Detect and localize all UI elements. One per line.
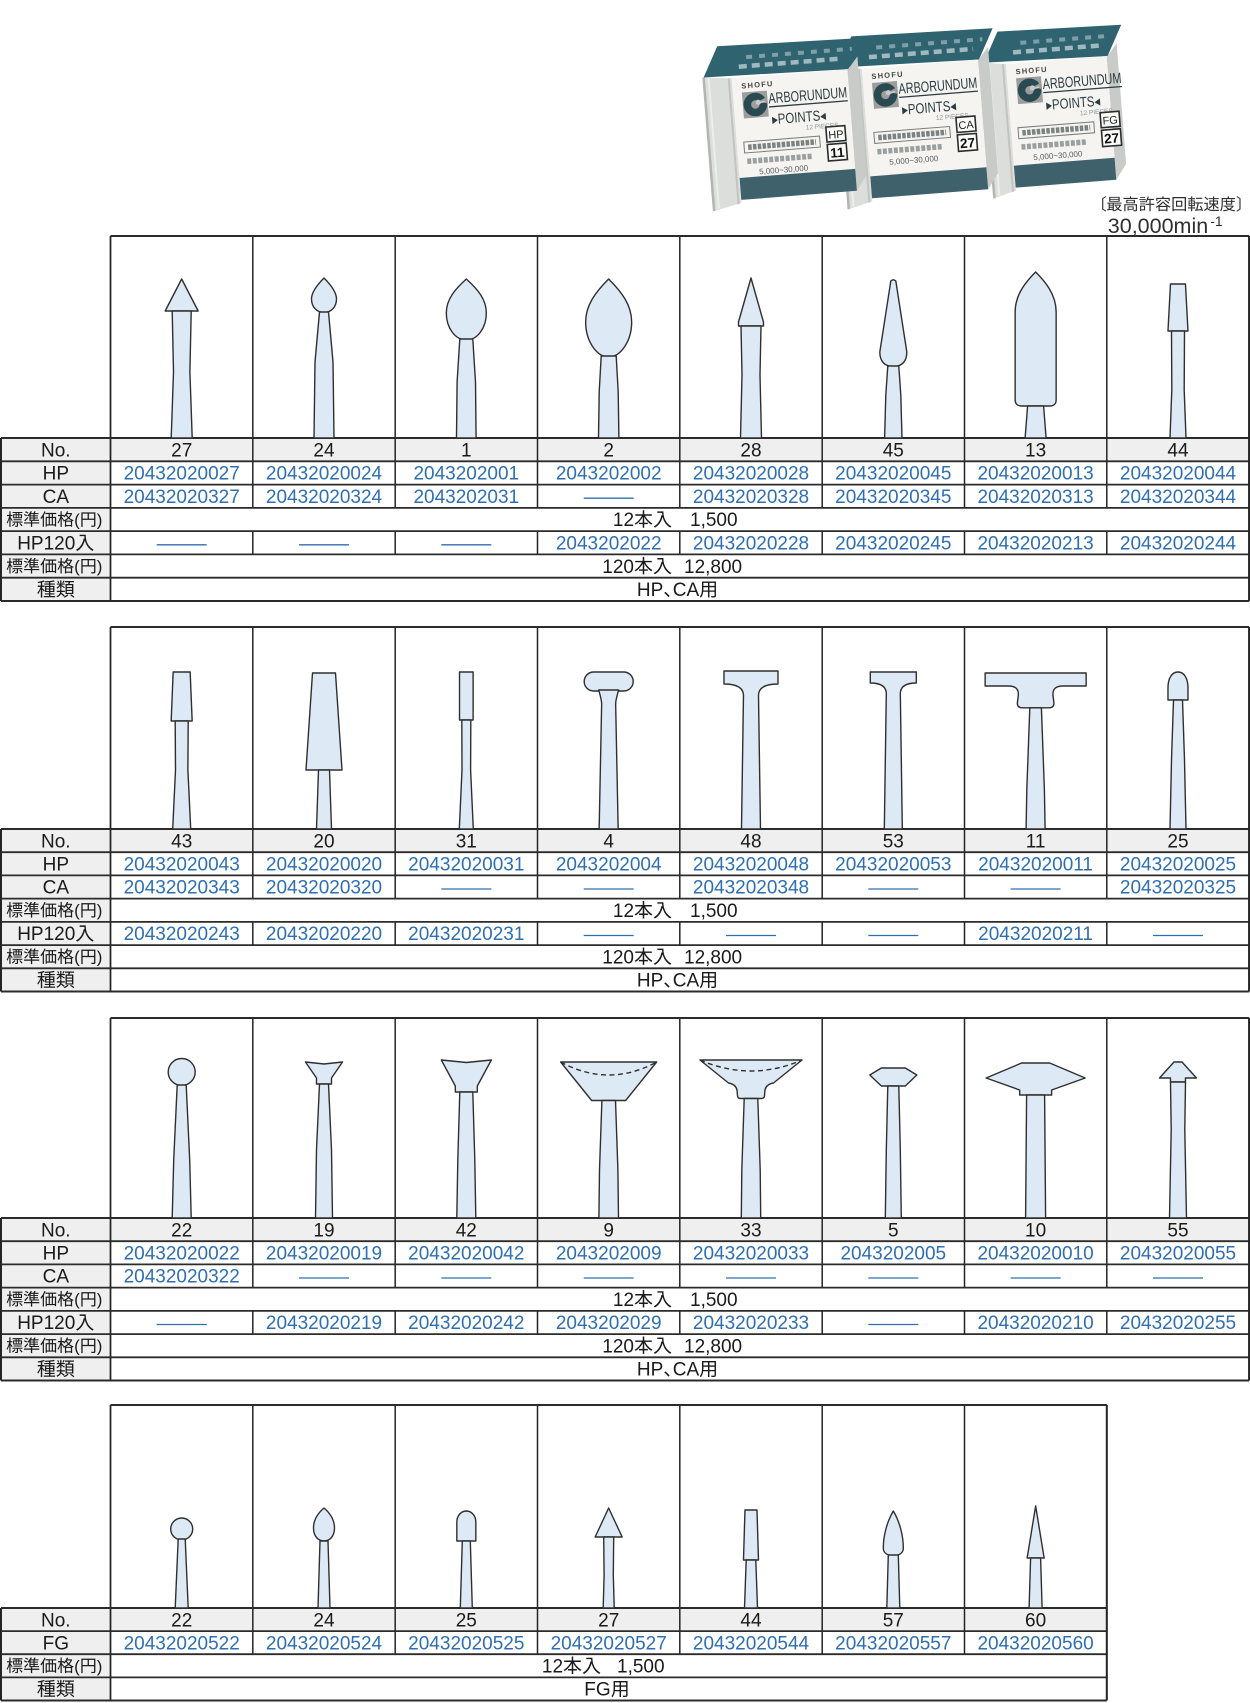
svg-text:): ) [97, 511, 103, 530]
svg-text:60: 60 [1025, 1610, 1046, 1631]
svg-text:HP: HP [43, 855, 69, 876]
svg-text:CA: CA [43, 878, 70, 899]
svg-text:(: ( [74, 901, 80, 920]
svg-text:): ) [97, 948, 103, 967]
svg-text:CA: CA [958, 119, 975, 132]
svg-text:11: 11 [830, 145, 846, 161]
svg-text:31: 31 [456, 831, 477, 852]
svg-text:20432020043: 20432020043 [124, 855, 240, 876]
svg-text:20432020019: 20432020019 [266, 1244, 382, 1265]
svg-text:20432020525: 20432020525 [408, 1633, 524, 1654]
svg-text:20432020210: 20432020210 [977, 1313, 1093, 1334]
svg-text:20432020024: 20432020024 [266, 464, 383, 485]
svg-text:20: 20 [313, 831, 334, 852]
svg-text:HP: HP [637, 1360, 663, 1381]
svg-text:20432020220: 20432020220 [266, 924, 382, 945]
svg-text:20432020025: 20432020025 [1120, 855, 1236, 876]
svg-text:20432020560: 20432020560 [977, 1633, 1093, 1654]
svg-text:-1: -1 [1210, 213, 1223, 229]
svg-text:44: 44 [1167, 440, 1189, 461]
svg-text:20432020243: 20432020243 [124, 924, 240, 945]
svg-text:120: 120 [602, 947, 634, 968]
svg-text:No.: No. [41, 1220, 71, 1241]
svg-text:20432020343: 20432020343 [124, 878, 240, 899]
svg-text:20432020011: 20432020011 [978, 855, 1093, 876]
svg-text:12: 12 [613, 510, 634, 531]
svg-text:HP: HP [637, 971, 663, 992]
svg-text:(: ( [74, 557, 80, 576]
svg-text:1,500: 1,500 [617, 1657, 665, 1678]
svg-text:20432020044: 20432020044 [1120, 464, 1237, 485]
svg-text:2043202002: 2043202002 [556, 464, 662, 485]
svg-text:42: 42 [456, 1220, 477, 1241]
svg-text:20432020042: 20432020042 [408, 1244, 524, 1265]
svg-text:HP: HP [43, 1244, 69, 1265]
svg-text:No.: No. [41, 1610, 71, 1631]
svg-text:25: 25 [456, 1610, 477, 1631]
svg-text:1,500: 1,500 [690, 901, 738, 922]
svg-text:20432020028: 20432020028 [693, 464, 809, 485]
svg-text:CA: CA [673, 971, 700, 992]
svg-text:24: 24 [313, 1610, 335, 1631]
svg-text:): ) [97, 1337, 103, 1356]
svg-text:20432020027: 20432020027 [124, 464, 240, 485]
svg-text:HP: HP [43, 464, 69, 485]
svg-text:13: 13 [1025, 440, 1046, 461]
svg-text:30,000min: 30,000min [1108, 214, 1208, 238]
svg-text:20432020031: 20432020031 [408, 855, 524, 876]
svg-text:12,800: 12,800 [684, 947, 742, 968]
svg-text:CA: CA [43, 487, 70, 508]
svg-text:(: ( [74, 1337, 80, 1356]
svg-text:(: ( [74, 1657, 80, 1676]
svg-text:43: 43 [171, 831, 192, 852]
svg-text:19: 19 [313, 1220, 334, 1241]
svg-text:CA: CA [673, 580, 700, 601]
svg-text:20432020022: 20432020022 [124, 1244, 240, 1265]
svg-text:11: 11 [1026, 831, 1046, 852]
svg-text:HP120: HP120 [17, 1313, 75, 1334]
svg-text:20432020045: 20432020045 [835, 464, 951, 485]
svg-text:FG: FG [1102, 114, 1118, 127]
svg-text:(: ( [74, 1290, 80, 1309]
svg-text:20432020033: 20432020033 [693, 1244, 809, 1265]
svg-text:12: 12 [613, 901, 634, 922]
svg-text:20432020228: 20432020228 [693, 534, 809, 555]
svg-text:20432020325: 20432020325 [1120, 878, 1236, 899]
svg-text:22: 22 [171, 1220, 192, 1241]
svg-text:No.: No. [41, 440, 71, 461]
svg-text:27: 27 [959, 135, 975, 151]
svg-text:20432020344: 20432020344 [1120, 487, 1237, 508]
svg-text:20432020320: 20432020320 [266, 878, 382, 899]
svg-text:27: 27 [598, 1610, 619, 1631]
svg-text:20432020010: 20432020010 [977, 1244, 1093, 1265]
svg-text:2: 2 [603, 440, 614, 461]
svg-text:2043202009: 2043202009 [556, 1244, 662, 1265]
svg-text:20432020348: 20432020348 [693, 878, 809, 899]
svg-text:33: 33 [740, 1220, 761, 1241]
svg-text:2043202004: 2043202004 [556, 855, 662, 876]
svg-text:12,800: 12,800 [684, 1336, 742, 1357]
svg-text:20432020524: 20432020524 [266, 1633, 383, 1654]
svg-text:9: 9 [603, 1220, 614, 1241]
svg-text:45: 45 [883, 440, 904, 461]
svg-text:2043202029: 2043202029 [556, 1313, 662, 1334]
svg-text:(: ( [74, 948, 80, 967]
svg-text:55: 55 [1167, 1220, 1188, 1241]
svg-text:): ) [97, 901, 103, 920]
svg-text:20432020055: 20432020055 [1120, 1244, 1236, 1265]
svg-text:25: 25 [1167, 831, 1188, 852]
svg-text:): ) [97, 1657, 103, 1676]
svg-text:20432020245: 20432020245 [835, 534, 951, 555]
svg-text:44: 44 [740, 1610, 762, 1631]
svg-text:FG: FG [584, 1680, 610, 1701]
svg-text:20432020213: 20432020213 [977, 534, 1093, 555]
svg-text:HP: HP [637, 580, 663, 601]
svg-text:20432020522: 20432020522 [124, 1633, 240, 1654]
svg-text:20432020544: 20432020544 [693, 1633, 810, 1654]
svg-text:FG: FG [43, 1633, 69, 1654]
svg-text:2043202022: 2043202022 [556, 534, 662, 555]
svg-text:20432020219: 20432020219 [266, 1313, 382, 1334]
svg-text:20432020557: 20432020557 [835, 1633, 951, 1654]
svg-text:20432020231: 20432020231 [408, 924, 524, 945]
svg-text:27: 27 [171, 440, 192, 461]
svg-text:1,500: 1,500 [690, 510, 738, 531]
svg-text:20432020345: 20432020345 [835, 487, 951, 508]
svg-text:4: 4 [603, 831, 614, 852]
svg-text:1: 1 [461, 440, 472, 461]
svg-text:28: 28 [740, 440, 761, 461]
svg-text:20432020328: 20432020328 [693, 487, 809, 508]
svg-text:20432020020: 20432020020 [266, 855, 382, 876]
svg-text:HP120: HP120 [17, 924, 75, 945]
svg-text:27: 27 [1104, 130, 1120, 146]
svg-text:10: 10 [1025, 1220, 1046, 1241]
svg-text:48: 48 [740, 831, 761, 852]
svg-text:No.: No. [41, 831, 71, 852]
svg-text:20432020053: 20432020053 [835, 855, 951, 876]
svg-text:2043202005: 2043202005 [840, 1244, 946, 1265]
svg-text:20432020324: 20432020324 [266, 487, 383, 508]
svg-text:20432020313: 20432020313 [977, 487, 1093, 508]
svg-text:120: 120 [602, 1336, 634, 1357]
svg-text:20432020244: 20432020244 [1120, 534, 1237, 555]
svg-text:): ) [97, 1290, 103, 1309]
svg-text:24: 24 [313, 440, 335, 461]
svg-text:20432020242: 20432020242 [408, 1313, 524, 1334]
svg-text:12,800: 12,800 [684, 557, 742, 578]
svg-text:CA: CA [43, 1267, 70, 1288]
svg-text:2043202001: 2043202001 [413, 464, 519, 485]
svg-text:CA: CA [673, 1360, 700, 1381]
svg-text:57: 57 [883, 1610, 904, 1631]
svg-text:20432020013: 20432020013 [977, 464, 1093, 485]
svg-text:12: 12 [542, 1657, 563, 1678]
svg-text:120: 120 [602, 557, 634, 578]
svg-text:20432020211: 20432020211 [978, 924, 1093, 945]
svg-text:20432020327: 20432020327 [124, 487, 240, 508]
svg-text:1,500: 1,500 [690, 1290, 738, 1311]
svg-text:20432020527: 20432020527 [551, 1633, 667, 1654]
svg-text:HP: HP [828, 129, 844, 142]
svg-text:12: 12 [613, 1290, 634, 1311]
svg-text:2043202031: 2043202031 [413, 487, 519, 508]
svg-text:20432020048: 20432020048 [693, 855, 809, 876]
svg-text:HP120: HP120 [17, 534, 75, 555]
svg-text:(: ( [74, 511, 80, 530]
svg-text:): ) [97, 557, 103, 576]
svg-text:53: 53 [883, 831, 904, 852]
svg-text:20432020322: 20432020322 [124, 1267, 240, 1288]
svg-text:22: 22 [171, 1610, 192, 1631]
svg-text:20432020233: 20432020233 [693, 1313, 809, 1334]
svg-text:5: 5 [888, 1220, 899, 1241]
svg-text:20432020255: 20432020255 [1120, 1313, 1236, 1334]
